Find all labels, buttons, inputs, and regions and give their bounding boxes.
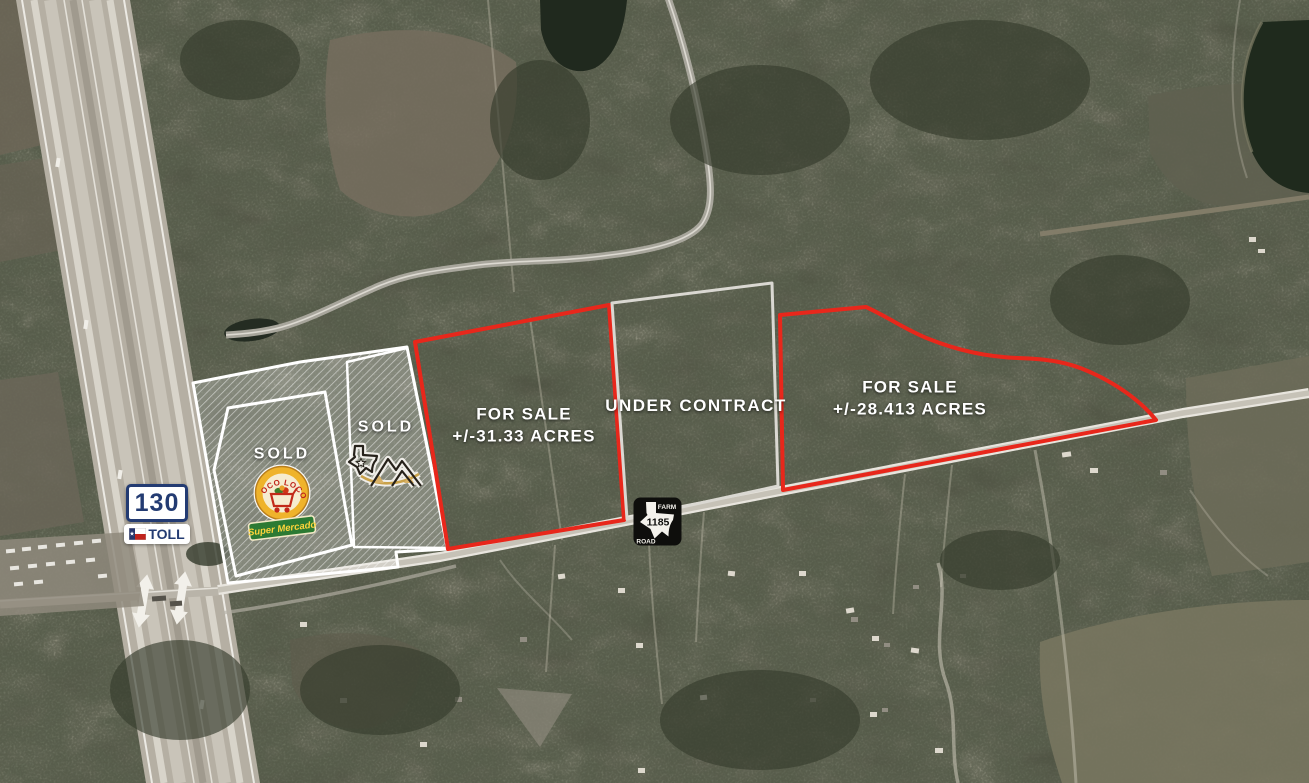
- highway-130-shield: 130 TOLL: [122, 484, 192, 544]
- farm-label: FARM: [658, 504, 676, 511]
- poco-loco-logo: POCO LOCO Super Mercado: [232, 443, 332, 548]
- for-sale-31-line2: +/-31.33 ACRES: [452, 426, 595, 448]
- for-sale-28-line1: FOR SALE: [833, 377, 987, 399]
- toll-plate: TOLL: [124, 524, 190, 544]
- super-mercado-banner: Super Mercado: [247, 515, 317, 540]
- parcel-label-for-sale-28: FOR SALE +/-28.413 ACRES: [833, 377, 987, 422]
- parcel-label-under-contract: UNDER CONTRACT: [605, 395, 787, 417]
- texas-flag-icon: [129, 528, 146, 540]
- aerial-land-sale-map: SOLD SOLD FOR SALE +/-31.33 ACRES UNDER …: [0, 0, 1309, 783]
- texas-star-mountain-logo: [343, 432, 435, 503]
- parcel-label-for-sale-31: FOR SALE +/-31.33 ACRES: [452, 404, 595, 449]
- satellite-imagery: [0, 0, 1309, 783]
- road-label: ROAD: [636, 539, 655, 546]
- route-130-plate: 130: [126, 484, 188, 522]
- toll-label: TOLL: [148, 524, 184, 544]
- for-sale-28-line2: +/-28.413 ACRES: [833, 399, 987, 421]
- farm-road-1185-shield: FARM ROAD 1185: [633, 497, 682, 551]
- for-sale-31-line1: FOR SALE: [452, 404, 595, 426]
- farm-road-number: 1185: [647, 517, 670, 529]
